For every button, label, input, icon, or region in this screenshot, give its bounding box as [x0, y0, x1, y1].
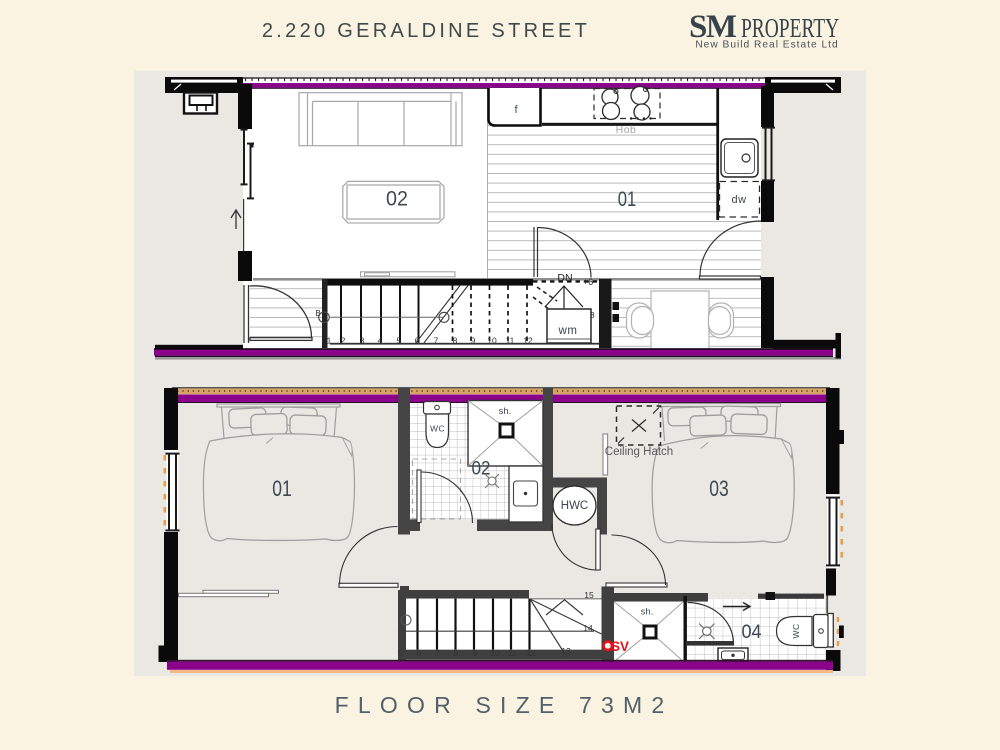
- svg-text:11: 11: [506, 336, 515, 346]
- svg-text:wm: wm: [558, 325, 578, 337]
- svg-text:2: 2: [341, 336, 346, 346]
- svg-text:New Build Real Estate Ltd: New Build Real Estate Ltd: [695, 40, 838, 51]
- svg-text:15: 15: [584, 590, 594, 600]
- svg-text:5: 5: [398, 648, 403, 658]
- svg-text:7: 7: [436, 648, 441, 658]
- svg-text:13: 13: [561, 646, 571, 656]
- svg-text:DN: DN: [557, 272, 572, 284]
- svg-text:11: 11: [508, 648, 517, 658]
- svg-text:8: 8: [453, 336, 458, 346]
- svg-text:6: 6: [417, 648, 422, 658]
- svg-text:sh.: sh.: [641, 607, 654, 618]
- svg-text:04: 04: [742, 621, 762, 643]
- svg-text:HWC: HWC: [561, 500, 588, 512]
- svg-text:03: 03: [709, 476, 729, 501]
- svg-text:10: 10: [487, 336, 497, 346]
- svg-text:FLOOR SIZE 73M2: FLOOR SIZE 73M2: [335, 692, 674, 718]
- svg-text:9: 9: [471, 336, 476, 346]
- svg-text:12: 12: [523, 336, 533, 346]
- svg-text:WC: WC: [791, 624, 801, 639]
- svg-text:B: B: [315, 309, 320, 318]
- svg-text:SV: SV: [611, 639, 629, 654]
- svg-text:3: 3: [360, 336, 365, 346]
- svg-text:+6: +6: [583, 277, 593, 287]
- svg-text:Hob: Hob: [616, 124, 637, 136]
- svg-text:dw: dw: [731, 194, 746, 206]
- svg-text:7: 7: [434, 336, 439, 346]
- svg-text:4: 4: [378, 336, 383, 346]
- svg-text:WC: WC: [430, 424, 445, 434]
- svg-text:1: 1: [327, 336, 332, 346]
- svg-text:2.220 GERALDINE STREET: 2.220 GERALDINE STREET: [262, 20, 590, 42]
- svg-text:14: 14: [583, 623, 593, 633]
- svg-text:Ceiling Hatch: Ceiling Hatch: [605, 446, 673, 458]
- svg-text:01: 01: [272, 476, 292, 501]
- svg-text:9: 9: [473, 648, 478, 658]
- svg-text:10: 10: [490, 648, 500, 658]
- svg-text:6: 6: [415, 336, 420, 346]
- svg-text:8: 8: [454, 648, 459, 658]
- svg-text:12: 12: [526, 648, 536, 658]
- svg-text:5: 5: [397, 336, 402, 346]
- svg-text:sh.: sh.: [499, 406, 512, 417]
- svg-text:01: 01: [618, 188, 637, 211]
- svg-text:02: 02: [386, 187, 408, 211]
